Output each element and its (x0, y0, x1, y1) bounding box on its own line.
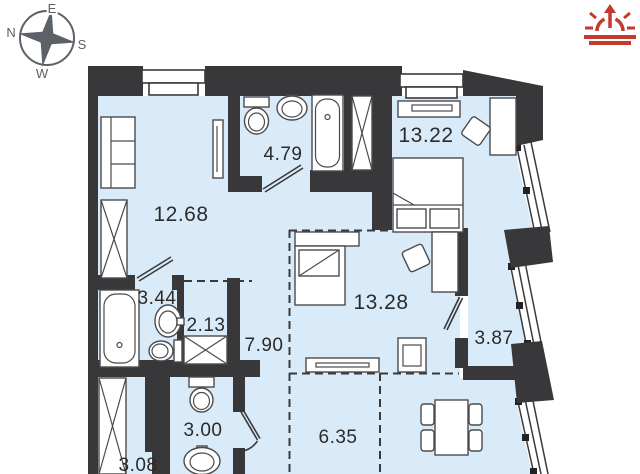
wall-bath-door-jamb (240, 176, 262, 192)
wall-outer-left (88, 66, 98, 474)
dining-chair (421, 404, 434, 425)
armchair (398, 338, 426, 372)
room-area-label: 3.87 (475, 328, 514, 349)
window-mullion (530, 468, 537, 474)
dining-chair (421, 430, 434, 451)
window-bedroom-outer (400, 74, 463, 87)
wardrobe (101, 200, 127, 278)
compass-west-label: W (36, 66, 49, 81)
dining-chair (469, 404, 482, 425)
room-area-label: 13.28 (353, 291, 408, 314)
window-mullion (523, 187, 530, 194)
wall-hall-bedroom-divider (372, 66, 392, 230)
wall-loggia-bottom-stub (463, 366, 518, 380)
tv-panel (213, 120, 223, 178)
wall-top-middle (205, 66, 392, 96)
washer-box (184, 336, 227, 364)
wall-bath3-right-bottom (233, 448, 245, 474)
toilet (244, 97, 269, 134)
bathtub (312, 95, 343, 171)
wall-loggia-left-bottom (455, 338, 468, 368)
room-area-label: 6.35 (319, 427, 358, 448)
compass-east-label: E (48, 1, 57, 16)
dresser (398, 101, 460, 117)
sink (277, 95, 307, 120)
room-area-label: 3.00 (184, 420, 223, 441)
wall-wardrobe-hall-divider (227, 278, 240, 372)
floor-plan-screenshot: 12.68 4.79 13.22 3.44 2.13 7.90 13.28 3.… (0, 0, 640, 474)
sofa (101, 117, 135, 188)
window-mullion (516, 302, 523, 309)
wall-living-right (228, 96, 240, 192)
wall-bath3-right-top (233, 374, 245, 412)
room-area-label: 3.44 (138, 288, 177, 309)
window-mullion (522, 434, 529, 441)
double-bed (393, 158, 463, 232)
shaft-closet (352, 96, 372, 170)
wall-top-left-block (88, 66, 143, 96)
desk (490, 98, 516, 155)
desk-2 (432, 232, 458, 292)
room-area-label: 2.13 (187, 315, 226, 336)
dining-chair (469, 430, 482, 451)
wall-tub-shaft-divider (344, 94, 352, 174)
window-living-outer (142, 70, 205, 83)
compass-rose-icon: N E S W (6, 1, 86, 81)
compass-north-label: N (6, 25, 15, 40)
wall-closet-right (145, 374, 170, 452)
room-area-label: 3.08 (119, 455, 158, 474)
floor-plan: 12.68 4.79 13.22 3.44 2.13 7.90 13.28 3.… (0, 0, 640, 474)
window-bedroom-inner (406, 87, 457, 98)
logo-arrow-head (604, 4, 616, 13)
compass-south-label: S (78, 37, 87, 52)
room-area-label: 7.90 (245, 335, 284, 356)
toilet-3 (189, 377, 214, 412)
console-table (306, 358, 379, 372)
bathtub-2 (100, 290, 139, 367)
window-living-inner (149, 83, 198, 95)
sunrise-logo-icon (584, 4, 636, 43)
room-area-label: 4.79 (264, 144, 303, 165)
wall-facade-chunk-mid (504, 226, 553, 268)
room-area-label: 13.22 (398, 124, 453, 147)
toilet-2 (149, 340, 182, 362)
room-area-label: 12.68 (153, 203, 208, 226)
